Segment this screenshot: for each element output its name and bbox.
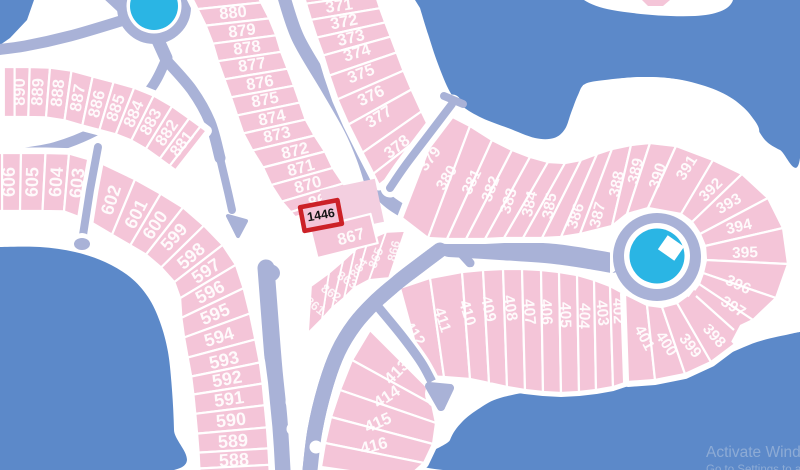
svg-text:403: 403	[592, 299, 611, 327]
svg-text:407: 407	[519, 298, 538, 325]
svg-text:606: 606	[0, 167, 19, 197]
svg-text:Go to Settings to activate Win: Go to Settings to activate Windows.	[706, 464, 800, 470]
svg-text:605: 605	[21, 167, 42, 198]
svg-text:888: 888	[48, 78, 69, 107]
svg-text:405: 405	[556, 302, 573, 329]
svg-text:890: 890	[11, 78, 29, 106]
svg-text:591: 591	[213, 387, 246, 411]
svg-text:395: 395	[732, 244, 759, 262]
svg-text:590: 590	[215, 408, 247, 431]
svg-text:406: 406	[537, 299, 555, 326]
svg-text:880: 880	[218, 3, 247, 24]
svg-text:604: 604	[45, 166, 67, 197]
svg-text:Activate Windows: Activate Windows	[706, 444, 800, 461]
svg-text:404: 404	[575, 303, 593, 330]
svg-text:588: 588	[218, 449, 249, 470]
svg-text:889: 889	[28, 78, 47, 106]
